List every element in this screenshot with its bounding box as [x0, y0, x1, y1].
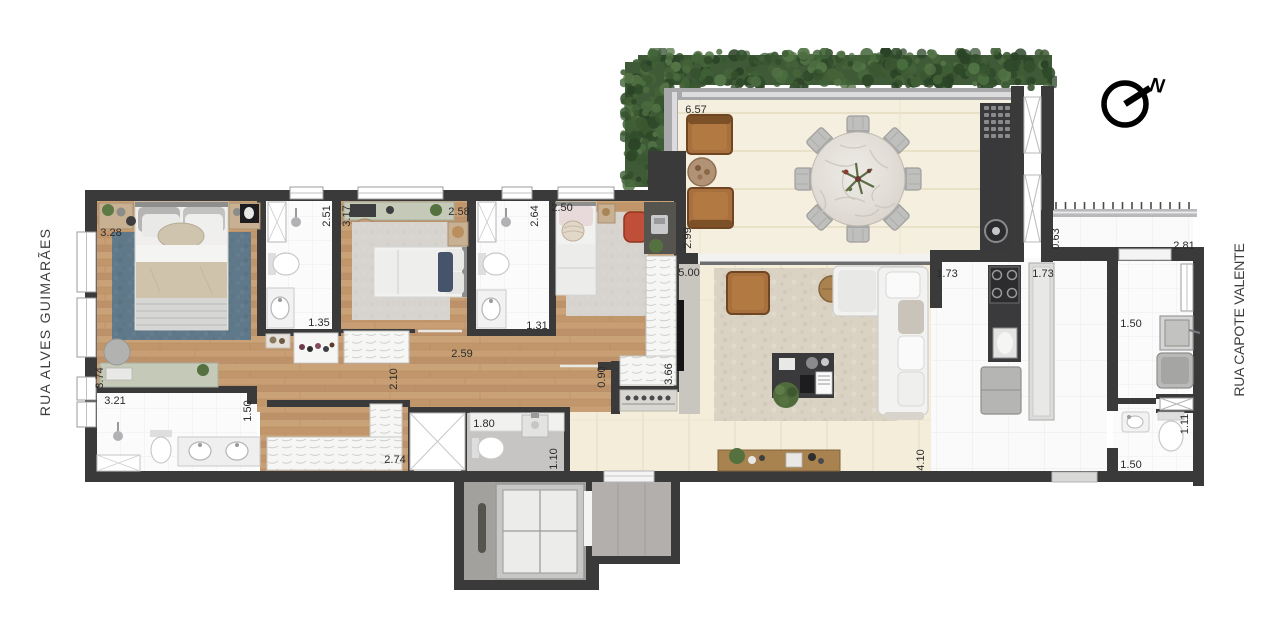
- svg-text:5.00: 5.00: [678, 267, 699, 279]
- svg-text:0.63: 0.63: [1050, 228, 1062, 249]
- svg-text:2.58: 2.58: [448, 206, 469, 218]
- svg-text:1.50: 1.50: [242, 400, 254, 421]
- svg-text:3.74: 3.74: [94, 367, 106, 388]
- svg-text:2.50: 2.50: [551, 202, 572, 214]
- svg-text:1.35: 1.35: [308, 317, 329, 329]
- svg-text:3.28: 3.28: [100, 227, 121, 239]
- svg-text:RUA ALVES GUIMARÃES: RUA ALVES GUIMARÃES: [37, 228, 53, 417]
- svg-text:1.11: 1.11: [1179, 414, 1191, 435]
- svg-text:3.21: 3.21: [104, 395, 125, 407]
- svg-text:2.99: 2.99: [682, 227, 694, 248]
- svg-text:1.50: 1.50: [1120, 459, 1141, 471]
- svg-text:1.73: 1.73: [1032, 268, 1053, 280]
- svg-text:2.59: 2.59: [451, 348, 472, 360]
- svg-text:1.50: 1.50: [1120, 318, 1141, 330]
- svg-text:2.10: 2.10: [388, 368, 400, 389]
- svg-text:4.10: 4.10: [915, 449, 927, 470]
- svg-text:RUA CAPOTE VALENTE: RUA CAPOTE VALENTE: [1231, 243, 1247, 396]
- svg-text:1.73: 1.73: [936, 268, 957, 280]
- svg-text:3.17: 3.17: [341, 205, 353, 226]
- svg-text:1.31: 1.31: [526, 320, 547, 332]
- svg-text:0.90: 0.90: [596, 366, 608, 387]
- svg-text:1.80: 1.80: [473, 418, 494, 430]
- svg-text:2.51: 2.51: [321, 205, 333, 226]
- svg-text:2.74: 2.74: [384, 454, 405, 466]
- svg-text:6.57: 6.57: [685, 104, 706, 116]
- svg-text:2.81: 2.81: [1173, 240, 1194, 252]
- svg-text:3.66: 3.66: [663, 363, 675, 384]
- svg-text:1.10: 1.10: [548, 448, 560, 469]
- svg-text:2.64: 2.64: [529, 205, 541, 226]
